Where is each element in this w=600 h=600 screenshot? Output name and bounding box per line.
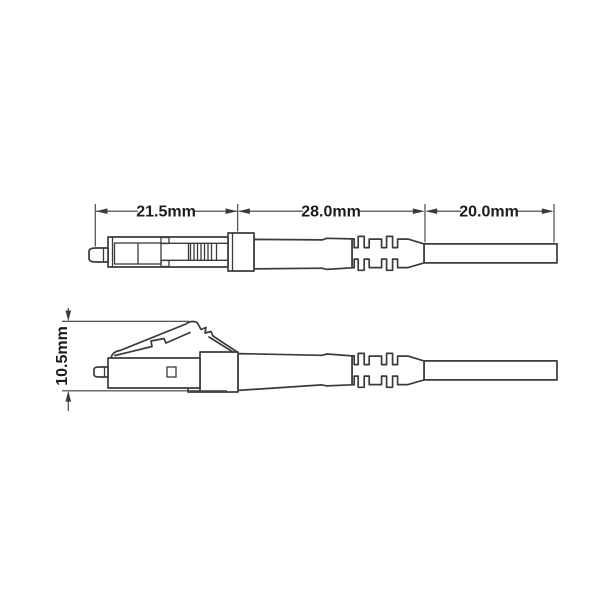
arrow-up-icon	[66, 391, 72, 402]
arrow-down-icon	[66, 311, 72, 322]
top-view	[89, 233, 557, 271]
side-view-boot-ribs	[352, 353, 424, 387]
side-view-front-body	[108, 358, 200, 388]
side-view-cable	[424, 361, 557, 380]
arrow-left-icon	[238, 208, 250, 214]
dim-cable-length: 20.0mm	[426, 204, 554, 221]
arrow-left-icon	[426, 208, 438, 214]
dim-front-length-label: 21.5mm	[136, 204, 196, 221]
top-view-boot-ribs	[352, 236, 424, 270]
top-view-ferrule	[89, 248, 108, 262]
arrow-right-icon	[226, 208, 238, 214]
side-view-rear-taper	[238, 354, 352, 391]
side-view-housing	[200, 352, 238, 392]
arrow-left-icon	[96, 208, 108, 214]
dim-front-length: 21.5mm	[96, 204, 237, 221]
lc-connector-dimension-drawing: 21.5mm 28.0mm 20.0mm 10.5mm	[0, 0, 600, 600]
arrow-right-icon	[542, 208, 554, 214]
dim-cable-length-label: 20.0mm	[459, 204, 519, 221]
dim-height-label: 10.5mm	[54, 326, 71, 386]
top-view-rear-taper	[254, 238, 352, 269]
side-view-ferrule	[94, 367, 108, 377]
side-view	[94, 322, 557, 393]
drawing-canvas: 21.5mm 28.0mm 20.0mm 10.5mm	[0, 0, 600, 600]
dim-body-length: 28.0mm	[238, 204, 424, 221]
top-view-cable	[424, 244, 557, 263]
dim-body-length-label: 28.0mm	[301, 204, 361, 221]
arrow-right-icon	[413, 208, 425, 214]
top-view-front-body	[108, 237, 228, 267]
